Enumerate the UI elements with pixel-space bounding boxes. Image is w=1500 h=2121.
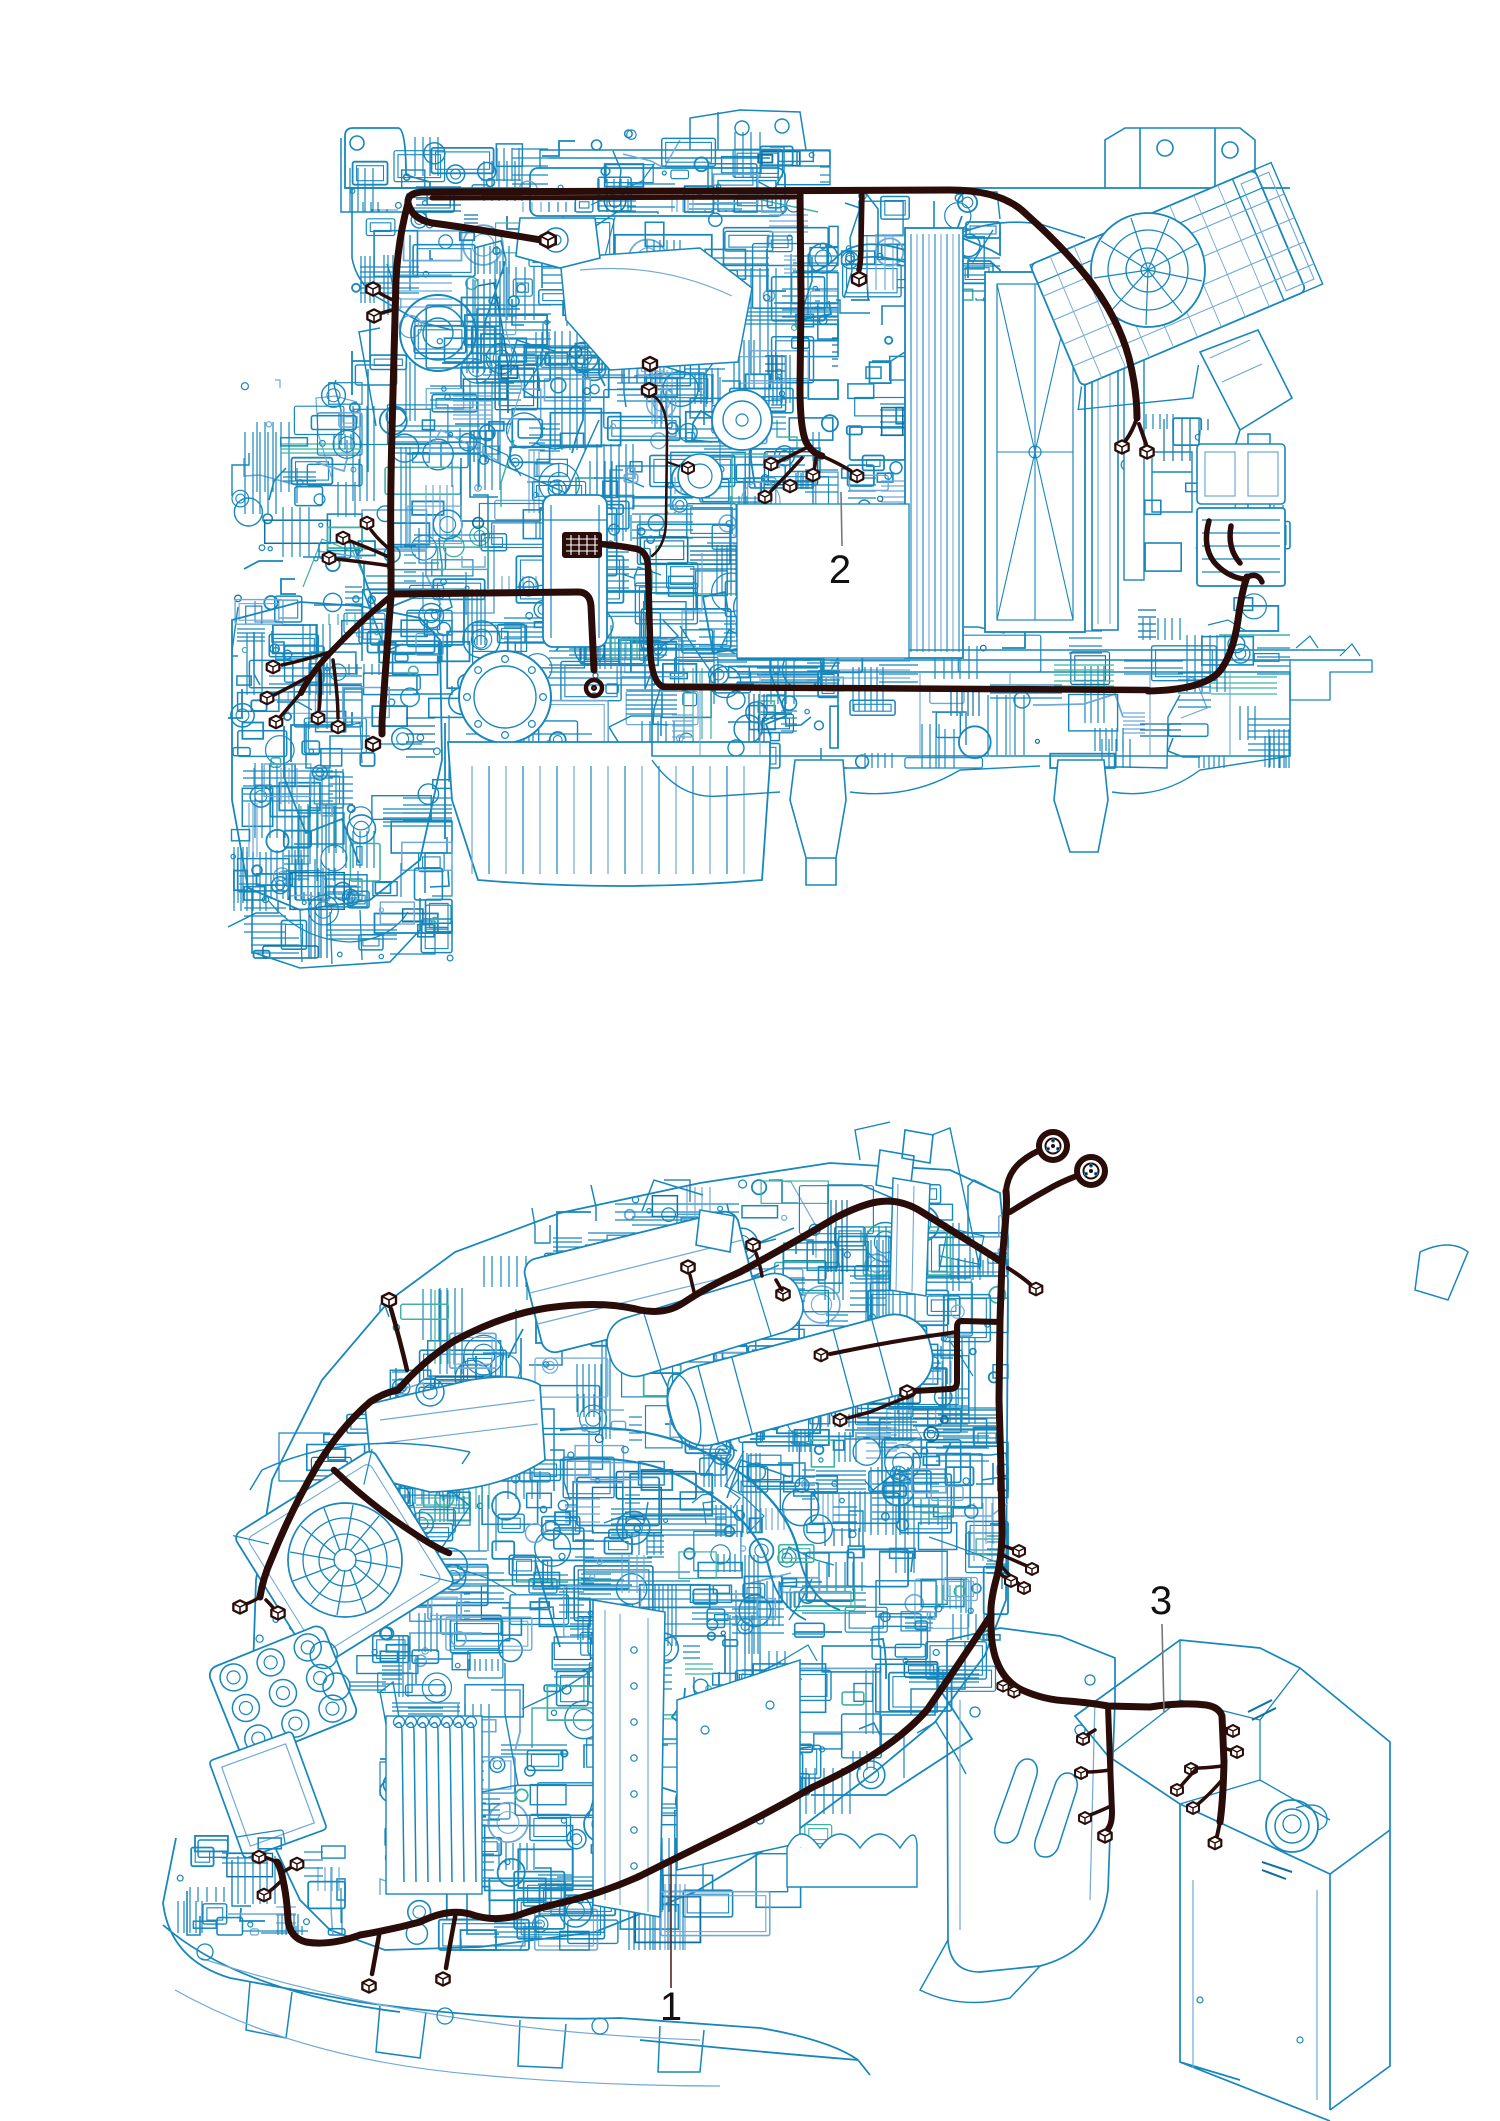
svg-text:1: 1 [660,1985,682,2029]
svg-text:2: 2 [829,548,851,592]
svg-text:3: 3 [1150,1579,1172,1623]
